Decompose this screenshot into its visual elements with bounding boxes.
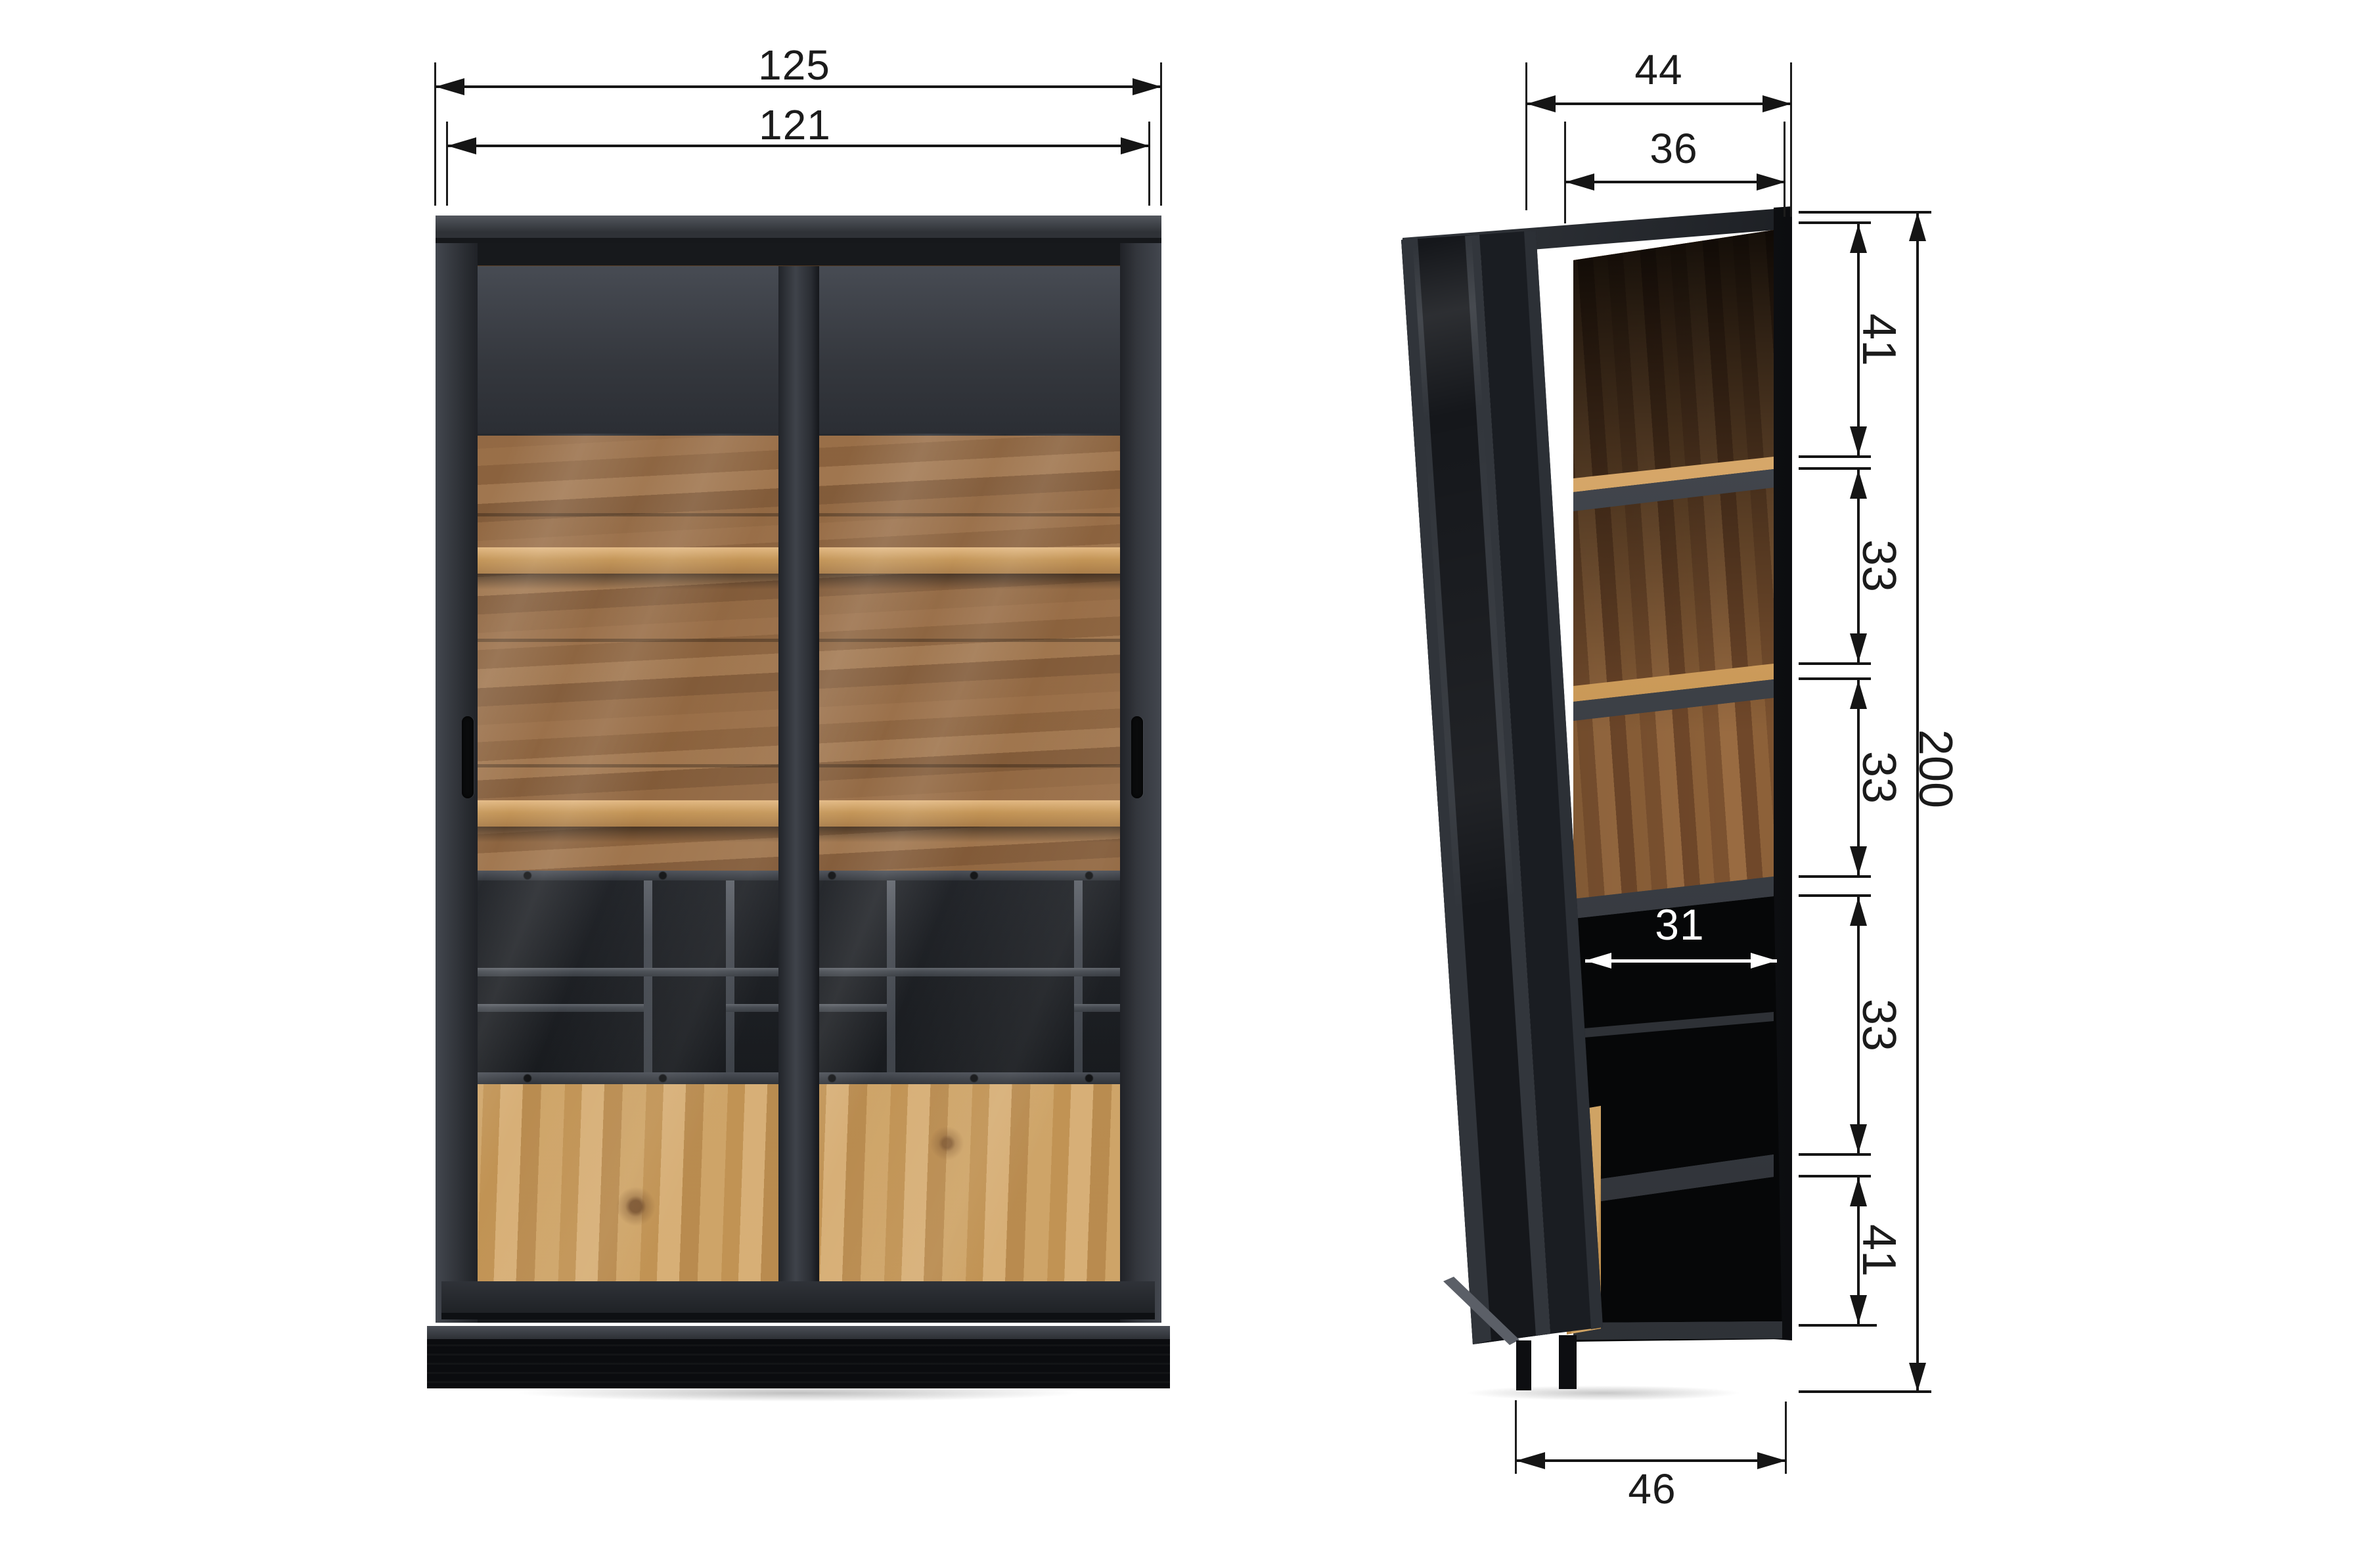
door-bottom-groove [441, 1313, 1155, 1319]
front-plinth-bevel [427, 1326, 1170, 1339]
dim-label-segment: 33 [1855, 712, 1902, 843]
arrow-up-icon [1850, 470, 1867, 499]
dim-label-segment: 33 [1855, 500, 1902, 631]
door-bottom-rail [441, 1281, 1155, 1313]
right-door-glass [819, 434, 1120, 1281]
arrow-right-icon [1133, 78, 1161, 95]
arrow-left-icon [1516, 1452, 1545, 1469]
dim-label-segment: 41 [1855, 274, 1902, 405]
front-view [427, 216, 1170, 1388]
side-foot [1559, 1335, 1577, 1389]
arrow-down-icon [1850, 846, 1867, 875]
left-door-glass [478, 434, 778, 1281]
arrow-up-icon [1850, 224, 1867, 253]
arrow-down-icon [1850, 1124, 1867, 1153]
front-plinth [427, 1326, 1170, 1388]
tick [1799, 662, 1871, 665]
arrow-left-icon [1527, 95, 1556, 112]
front-floor-shadow [407, 1381, 1189, 1405]
dim-line-shelf-inner-depth [1585, 959, 1777, 963]
dim-label-inner-depth: 36 [1575, 127, 1772, 170]
arrow-down-icon [1909, 1363, 1926, 1392]
arrow-left-icon [1565, 173, 1594, 191]
arrow-right-icon [1121, 137, 1150, 154]
dim-label-inner-width: 121 [696, 103, 893, 147]
white-arrow-right-icon [1751, 953, 1777, 969]
tick [1799, 875, 1871, 878]
left-door-handle [462, 716, 474, 798]
ext-line [1525, 62, 1527, 210]
arrow-right-icon [1757, 173, 1785, 191]
dim-label-overall-height: 200 [1912, 703, 1959, 834]
front-cornice-seam [436, 238, 1161, 243]
arrow-up-icon [1909, 212, 1926, 241]
arrow-down-icon [1850, 633, 1867, 662]
ext-line [446, 122, 448, 206]
arrow-down-icon [1850, 426, 1867, 455]
arrow-right-icon [1757, 1452, 1786, 1469]
dim-line-base-depth [1516, 1459, 1786, 1462]
front-cornice [436, 216, 1161, 238]
dim-line-overall-depth [1527, 103, 1791, 105]
right-door-handle [1131, 716, 1143, 798]
dim-line-inner-depth [1565, 181, 1785, 183]
tick [1799, 1153, 1871, 1156]
arrow-left-icon [447, 137, 476, 154]
dim-label-overall-width: 125 [696, 43, 893, 87]
dim-label-shelf-inner-depth: 31 [1614, 903, 1745, 946]
ext-line [1784, 122, 1785, 217]
dim-label-segment: 41 [1855, 1185, 1902, 1316]
dim-label-base-depth: 46 [1554, 1467, 1751, 1511]
tick [1799, 1324, 1877, 1327]
dim-label-segment: 33 [1855, 959, 1902, 1091]
arrow-up-icon [1850, 680, 1867, 709]
tick [1799, 455, 1871, 458]
arrow-up-icon [1850, 897, 1867, 926]
arrow-right-icon [1763, 95, 1791, 112]
center-mullion [778, 266, 819, 1316]
white-arrow-left-icon [1585, 953, 1611, 969]
dimension-diagram: 125 121 31 [0, 0, 2380, 1552]
dim-label-overall-depth: 44 [1560, 48, 1757, 91]
arrow-left-icon [436, 78, 464, 95]
ext-line [1564, 122, 1566, 223]
ext-line [1790, 62, 1792, 217]
ext-line [1148, 122, 1150, 206]
side-floor-shadow [1412, 1382, 1793, 1404]
